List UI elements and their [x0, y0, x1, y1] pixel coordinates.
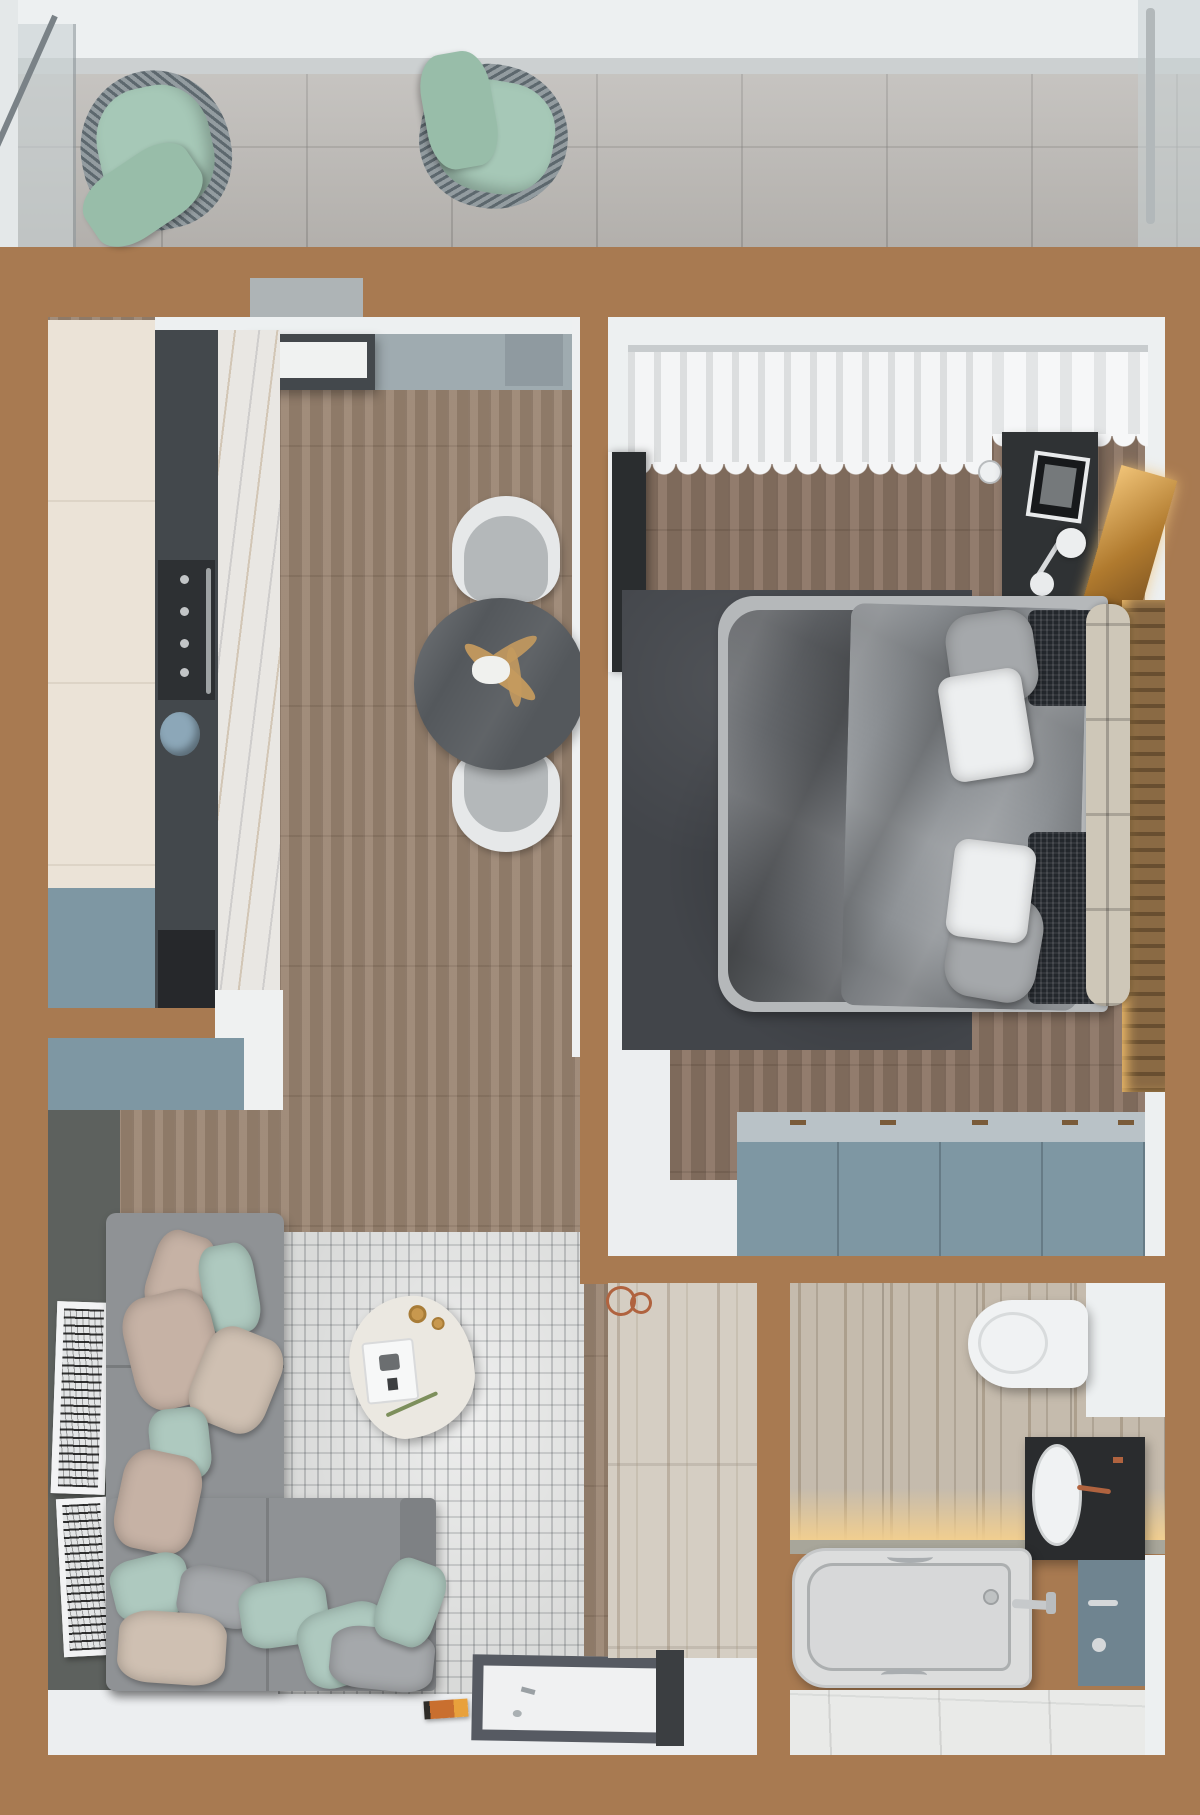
- tub-handle: [881, 1669, 927, 1681]
- hallway-marble-floor: [608, 1283, 757, 1658]
- ac-unit: [505, 334, 563, 386]
- bed-headboard: [1086, 604, 1130, 1006]
- dresser-handle: [1062, 1120, 1078, 1125]
- white-counter-corner: [215, 990, 283, 1038]
- dresser-handle: [790, 1120, 806, 1125]
- teal-counter: [1078, 1560, 1145, 1686]
- hanging-clothes: [628, 352, 992, 464]
- desk-lamp-head: [1056, 528, 1086, 558]
- oven-knob: [180, 607, 189, 616]
- toilet-wall-panel: [1086, 1283, 1165, 1417]
- mat-mark: [521, 1687, 536, 1695]
- hood-duct: [250, 278, 363, 317]
- oven-handle: [206, 568, 211, 694]
- bedroom-white-floor-strip: [608, 1180, 738, 1258]
- chrome-bar: [1088, 1600, 1118, 1606]
- blue-cabinet-lower: [48, 1038, 244, 1110]
- desk-lamp-base: [1030, 572, 1054, 596]
- sink-bowl: [160, 712, 200, 756]
- throw-pillow: [116, 1608, 229, 1687]
- dresser-top: [737, 1112, 1145, 1142]
- marble-backsplash-counter: [218, 330, 280, 1010]
- round-dining-table: [414, 598, 586, 770]
- art-abstract: [62, 1503, 108, 1651]
- magazine: [423, 1698, 468, 1719]
- desk: [1002, 432, 1098, 598]
- glass-railing-left: [18, 24, 76, 247]
- kitchen-wall-stub: [0, 1008, 218, 1038]
- bath-right-trim: [1145, 1555, 1165, 1755]
- copper-accessory: [1113, 1457, 1123, 1463]
- gold-candle: [408, 1304, 428, 1324]
- apartment-plan-render: [0, 0, 1200, 1815]
- tray-item: [387, 1378, 398, 1391]
- white-flowers: [472, 656, 510, 684]
- bed-pillow-white: [944, 837, 1037, 944]
- bathtub-basin: [807, 1563, 1011, 1671]
- oval-sink: [1032, 1444, 1082, 1546]
- toilet-bowl-line: [978, 1312, 1048, 1374]
- black-vanity: [1025, 1437, 1145, 1560]
- bedroom-bottom-wall: [580, 1256, 1165, 1284]
- bath-marble-floor: [790, 1690, 1165, 1755]
- mat-mark: [513, 1710, 522, 1717]
- living-bedroom-wall: [580, 247, 608, 1283]
- bathtub: [792, 1548, 1032, 1688]
- hanging-garment-bags: [992, 352, 1148, 436]
- outdoor-chair-right: [401, 52, 580, 221]
- tall-cream-cabinets: [48, 320, 155, 888]
- tray-item: [379, 1353, 401, 1371]
- railing-post: [1146, 8, 1155, 224]
- oven-knob: [180, 668, 189, 677]
- decor-tray: [361, 1338, 419, 1405]
- blue-cabinet-upper: [48, 888, 155, 1010]
- tub-handle: [887, 1551, 933, 1563]
- laptop-screen: [1040, 464, 1077, 508]
- tub-spout: [1046, 1592, 1056, 1614]
- wall-art-frame: [51, 1301, 112, 1495]
- dresser-handle: [1118, 1120, 1134, 1125]
- wall-hung-toilet: [968, 1300, 1088, 1388]
- art-abstract: [58, 1308, 104, 1487]
- oven-knob: [180, 575, 189, 584]
- dining-chair-top: [452, 496, 560, 602]
- oven-knob: [180, 639, 189, 648]
- laptop: [1026, 450, 1091, 523]
- dresser-handle: [880, 1120, 896, 1125]
- chrome-knob: [1092, 1638, 1106, 1652]
- bedroom-trim-top: [608, 317, 1165, 345]
- doormat: [471, 1654, 672, 1743]
- white-counter-edge: [244, 1038, 283, 1110]
- tub-drain: [983, 1589, 999, 1605]
- chair-cushion: [464, 516, 548, 602]
- hall-console-edge: [656, 1650, 684, 1746]
- dresser-handle: [972, 1120, 988, 1125]
- gold-candle: [431, 1316, 445, 1330]
- balcony-ledge: [0, 0, 1200, 58]
- bed-pillow-white: [936, 666, 1036, 784]
- hall-bath-wall: [757, 1283, 790, 1755]
- wall-clock: [978, 460, 1002, 484]
